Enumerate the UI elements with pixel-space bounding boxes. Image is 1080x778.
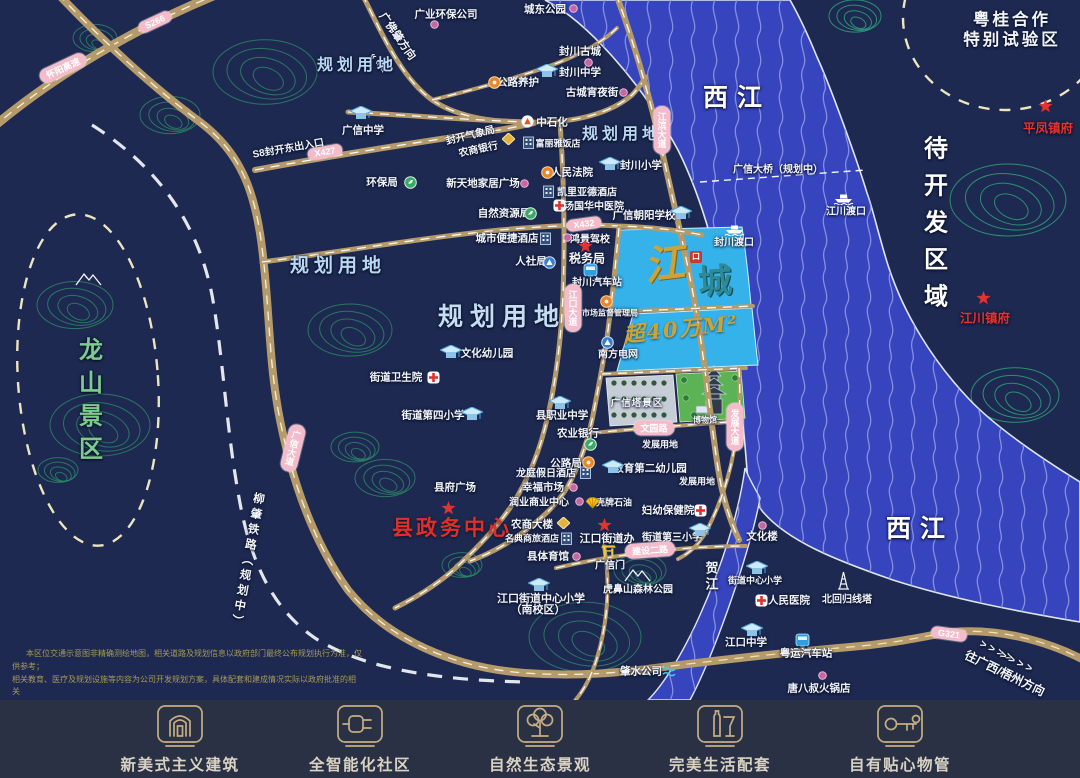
map-label: 自然资源局 [478,206,531,221]
star-icon [597,518,612,532]
tower-icon [837,571,850,590]
footer-feature-label: 全智能化社区 [309,753,411,775]
cross-icon [553,199,566,212]
map-label: 县府广场 [434,480,476,495]
ferry-icon [724,223,745,236]
road-name-pill: 江滨大道 [654,106,671,154]
map-label: 城东公园 [524,2,566,17]
life-icon [694,704,746,750]
map-label: 农商大楼 [511,517,553,532]
footer-feature-life: 完美生活配套 [630,704,810,775]
map-label: 城市便捷酒店 [476,231,539,246]
footer-feature-label: 完美生活配套 [669,753,771,775]
mtn-icon [75,271,102,286]
map-label: 人民医院 [768,593,810,608]
hotel-icon [539,232,552,245]
map-label: 封川小学 [620,158,662,173]
map-label: 环保局 [366,175,398,190]
estate-location-map: 江 口 城 广业环保公司城东公园封川古城封川中学古城宵夜街公路养护中石化广佛肇方… [0,0,1080,778]
footer-feature-smart: 全智能化社区 [270,704,450,775]
map-label: 县政务中心 [392,512,512,542]
map-label: 江川镇府 [960,308,1010,327]
map-label: 封川渡口 [714,234,754,249]
cross-icon [694,504,707,517]
map-label: （南校区） [511,601,566,617]
map-label: 广业环保公司 [415,7,478,22]
shell-icon [585,496,600,509]
map-label: 规划用地 [317,51,397,75]
dot-icon [572,552,581,561]
footer-feature-key: 自有贴心物管 [810,704,990,775]
map-label: 妇幼保健院 [642,503,695,518]
map-label: 幸福市场 [522,480,564,495]
map-label: 虎鼻山森林公园 [603,581,673,596]
gold-icon [557,517,570,529]
map-label: 平凤镇府 [1023,118,1073,137]
disclaimer-line: 本区位交通示意图非精确测绘地图，相关道路及规划信息以政府部门最终公布规划执行为准… [12,648,362,674]
bus-icon [583,263,598,279]
dot-icon [758,521,767,530]
road-name-pill: 文园路 [633,421,674,436]
school-icon [602,460,624,475]
logo-char-cheng: 城 [696,253,733,304]
map-label: 龙庭假日酒店 [516,465,576,480]
footer-feature-label: 自然生态景观 [489,753,591,775]
dot-icon [520,179,529,188]
map-label: 润业商业中心 [509,494,569,509]
map-label: 西江 [886,509,954,545]
school-icon [350,106,372,121]
map-label: 规划用地 [582,120,662,144]
map-label: 发展用地 [642,438,678,451]
map-label: 北回归线塔 [822,591,872,606]
tree-icon [514,704,566,750]
gate-icon [601,545,616,558]
map-label: 特别试验区 [963,26,1061,50]
star-icon [1038,99,1053,113]
map-label: 凯里亚德酒店 [557,184,617,199]
school-icon [741,623,763,638]
dot-icon [430,20,439,29]
disclaimer-line: 相关教育、医疗及规划设施等内容为公司开发规划方案，具体配套和建成情况实际以政府批… [12,674,362,700]
map-label: 市场监督管理局 [582,308,638,319]
dot-icon [563,233,572,242]
map-label-overlay: 江 口 城 广业环保公司城东公园封川古城封川中学古城宵夜街公路养护中石化广佛肇方… [0,0,1080,700]
mtn-icon [624,567,651,582]
map-label: 肇水公司 [620,664,662,679]
map-label: 超40万M² [622,307,740,349]
arch-icon [154,704,206,750]
hotel-icon [542,185,555,198]
map-label: 贺江 [702,561,721,593]
hotel-icon [522,136,535,149]
road-name-pill: G321 [930,626,967,643]
star-icon [578,239,593,253]
map-label: 规划用地 [438,297,566,333]
map-label: 广信塔景区 [611,395,664,409]
smart-icon [334,704,386,750]
footer-feature-tree: 自然生态景观 [450,704,630,775]
school-icon [461,407,483,422]
cgreen-icon [524,207,537,220]
map-label: 文化幼儿园 [461,346,514,361]
hotel-icon [560,532,573,545]
map-label: 龙山景区 [71,337,106,469]
map-label: 广信朝阳学校 [613,208,676,223]
corange-icon [600,295,613,308]
map-label: 名典商旅酒店 [505,532,559,545]
road-name-pill: 怀阳高速 [37,51,89,86]
map-label: 封川中学 [559,65,601,80]
school-icon [746,561,768,576]
logo-char-jiang: 江 [641,230,688,292]
ferry-icon [833,192,854,205]
map-label: 规划用地 [290,251,386,278]
map-label: 博物馆 [693,415,717,426]
dot-icon [584,58,593,67]
bus-icon [795,633,810,649]
dot-icon [619,88,628,97]
map-label: 公路养护 [497,75,539,90]
dot-icon [818,671,827,680]
school-icon [440,345,462,360]
map-label: 壳牌石油 [596,496,632,509]
school-icon [536,64,558,79]
dot-icon [569,483,578,492]
road-name-pill: S266 [137,9,174,35]
map-label: 街道卫生院 [370,370,423,385]
cross-icon [755,594,768,607]
road-name-pill: 发展大道 [727,403,744,451]
school-icon [689,523,711,538]
dot-icon [575,497,584,506]
footer-feature-label: 新美式主义建筑 [120,753,239,775]
map-label: 古城宵夜街 [566,85,619,100]
map-label: 教育第二幼儿园 [613,461,687,476]
water-icon [662,666,677,677]
star-icon [441,501,456,515]
gold-icon [502,133,515,145]
school-icon [549,396,571,411]
map-label: 柳肇铁路（规划中） [227,491,267,631]
map-label: 街道第四小学 [402,408,465,423]
map-label: 县体育馆 [527,549,569,564]
map-label: 广信门 [595,557,625,572]
feature-footer: 新美式主义建筑全智能化社区自然生态景观完美生活配套自有贴心物管 [0,700,1080,778]
key-icon [874,704,926,750]
map-label: 广信大桥（规划中） [733,161,823,176]
corange-icon [541,166,554,179]
school-icon [670,206,692,221]
map-label: 文化楼 [746,529,778,544]
school-icon [528,578,550,593]
map-label: 西江 [703,78,771,114]
corange-icon [488,76,501,89]
footer-feature-arch: 新美式主义建筑 [90,704,270,775]
dot-icon [569,4,578,13]
cgreen-icon [404,176,417,189]
cblue-icon [543,256,556,269]
map-label: 江川渡口 [826,203,866,218]
corange-icon [582,456,595,469]
road-name-pill: 建设二路 [625,541,676,559]
school-icon [599,157,621,172]
map-label: 广信中学 [342,123,384,138]
cgreen-icon [584,438,597,451]
map-label: 人民法院 [551,165,593,180]
star-icon [976,291,991,305]
road-name-pill: 广信大道 [279,423,307,474]
map-label: 发展用地 [679,475,715,488]
road-name-pill: 江口大道 [565,284,582,332]
footer-feature-label: 自有贴心物管 [849,753,951,775]
map-label: 中石化 [536,115,568,130]
map-label: 封川古城 [559,44,601,59]
map-label: 新天地家居广场 [446,176,520,191]
cross-icon [427,371,440,384]
map-label: 富丽雅饭店 [535,137,580,150]
map-label: 待开发区域 [916,136,951,321]
pump-icon [521,115,534,128]
cblue-icon [601,336,614,349]
map-label: 唐八叔火锅店 [788,681,851,696]
